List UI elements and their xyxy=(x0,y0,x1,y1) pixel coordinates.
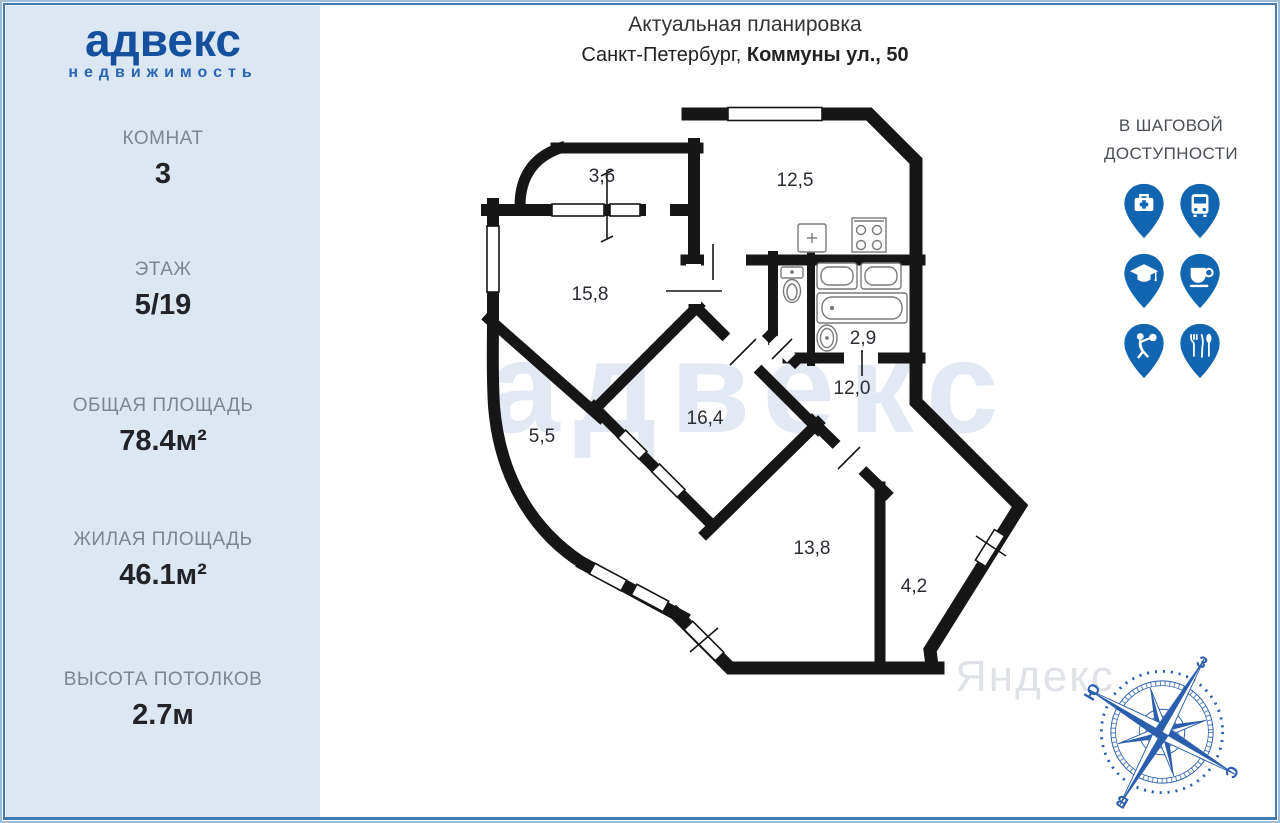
nearby-title-line1: В ШАГОВОЙ xyxy=(1060,112,1280,140)
medical-pin-icon xyxy=(1121,182,1167,240)
room-label-room-16: 16,4 xyxy=(687,408,724,429)
stat-ceiling-height-label: ВЫСОТА ПОТОЛКОВ xyxy=(6,669,320,691)
stat-total-area-label: ОБЩАЯ ПЛОЩАДЬ xyxy=(6,395,320,417)
toilet-icon xyxy=(781,267,803,303)
stat-floor: ЭТАЖ 5/19 xyxy=(6,259,320,322)
stat-living-area: ЖИЛАЯ ПЛОЩАДЬ 46.1м² xyxy=(6,529,320,592)
washer-icon xyxy=(817,263,857,289)
restaurant-pin-icon xyxy=(1177,322,1223,380)
transport-pin-icon xyxy=(1177,182,1223,240)
page: адвекс недвижимость КОМНАТ 3 ЭТАЖ 5/19 О… xyxy=(0,0,1280,823)
education-pin-icon xyxy=(1121,252,1167,310)
nearby-title-line2: ДОСТУПНОСТИ xyxy=(1060,140,1280,168)
kitchen-sink-icon xyxy=(798,224,826,252)
stove-icon xyxy=(852,218,886,252)
room-label-kitchen: 12,5 xyxy=(777,170,814,191)
stat-living-area-label: ЖИЛАЯ ПЛОЩАДЬ xyxy=(6,529,320,551)
page-title: Актуальная планировка xyxy=(340,10,1150,40)
room-label-balcony-large: 5,5 xyxy=(529,426,555,447)
room-label-bathroom: 2,9 xyxy=(850,328,876,349)
agency-logo-subtitle: недвижимость xyxy=(6,64,320,82)
room-label-living-room: 15,8 xyxy=(572,284,609,305)
stat-rooms-value: 3 xyxy=(6,158,320,191)
compass-north-label: С xyxy=(1220,762,1242,781)
address-city: Санкт-Петербург, xyxy=(581,44,747,66)
room-label-hallway: 12,0 xyxy=(834,378,871,399)
floor-plan: адвекс xyxy=(480,100,1040,675)
sidebar: адвекс недвижимость КОМНАТ 3 ЭТАЖ 5/19 О… xyxy=(6,6,320,817)
compass-south-label: Ю xyxy=(1081,680,1105,703)
agency-logo-title: адвекс xyxy=(6,18,320,62)
nearby-title: В ШАГОВОЙ ДОСТУПНОСТИ xyxy=(1060,112,1280,168)
agency-logo: адвекс недвижимость xyxy=(6,18,320,82)
compass-west-label: З xyxy=(1193,652,1211,673)
bath-sink-icon xyxy=(817,325,837,351)
compass-rose: С В Ю З xyxy=(1072,642,1252,822)
nearby-pins xyxy=(1118,182,1226,380)
room-label-room-4: 4,2 xyxy=(901,576,927,597)
room-label-balcony-small: 3,6 xyxy=(589,166,615,187)
room-label-room-13: 13,8 xyxy=(794,538,831,559)
stat-ceiling-height-value: 2.7м xyxy=(6,699,320,732)
stat-floor-value: 5/19 xyxy=(6,289,320,322)
stat-living-area-value: 46.1м² xyxy=(6,559,320,592)
stat-rooms: КОМНАТ 3 xyxy=(6,128,320,191)
page-address: Санкт-Петербург, Коммуны ул., 50 xyxy=(340,40,1150,70)
compass-east-label: В xyxy=(1113,791,1132,812)
cabinet-icon xyxy=(861,263,901,289)
stat-total-area-value: 78.4м² xyxy=(6,425,320,458)
header: Актуальная планировка Санкт-Петербург, К… xyxy=(340,10,1150,70)
bathtub-icon xyxy=(817,293,907,323)
stat-rooms-label: КОМНАТ xyxy=(6,128,320,150)
stat-total-area: ОБЩАЯ ПЛОЩАДЬ 78.4м² xyxy=(6,395,320,458)
fitness-pin-icon xyxy=(1121,322,1167,380)
cafe-pin-icon xyxy=(1177,252,1223,310)
address-street: Коммуны ул., 50 xyxy=(747,44,909,66)
stat-ceiling-height: ВЫСОТА ПОТОЛКОВ 2.7м xyxy=(6,669,320,732)
compass-star xyxy=(1084,654,1239,809)
stat-floor-label: ЭТАЖ xyxy=(6,259,320,281)
